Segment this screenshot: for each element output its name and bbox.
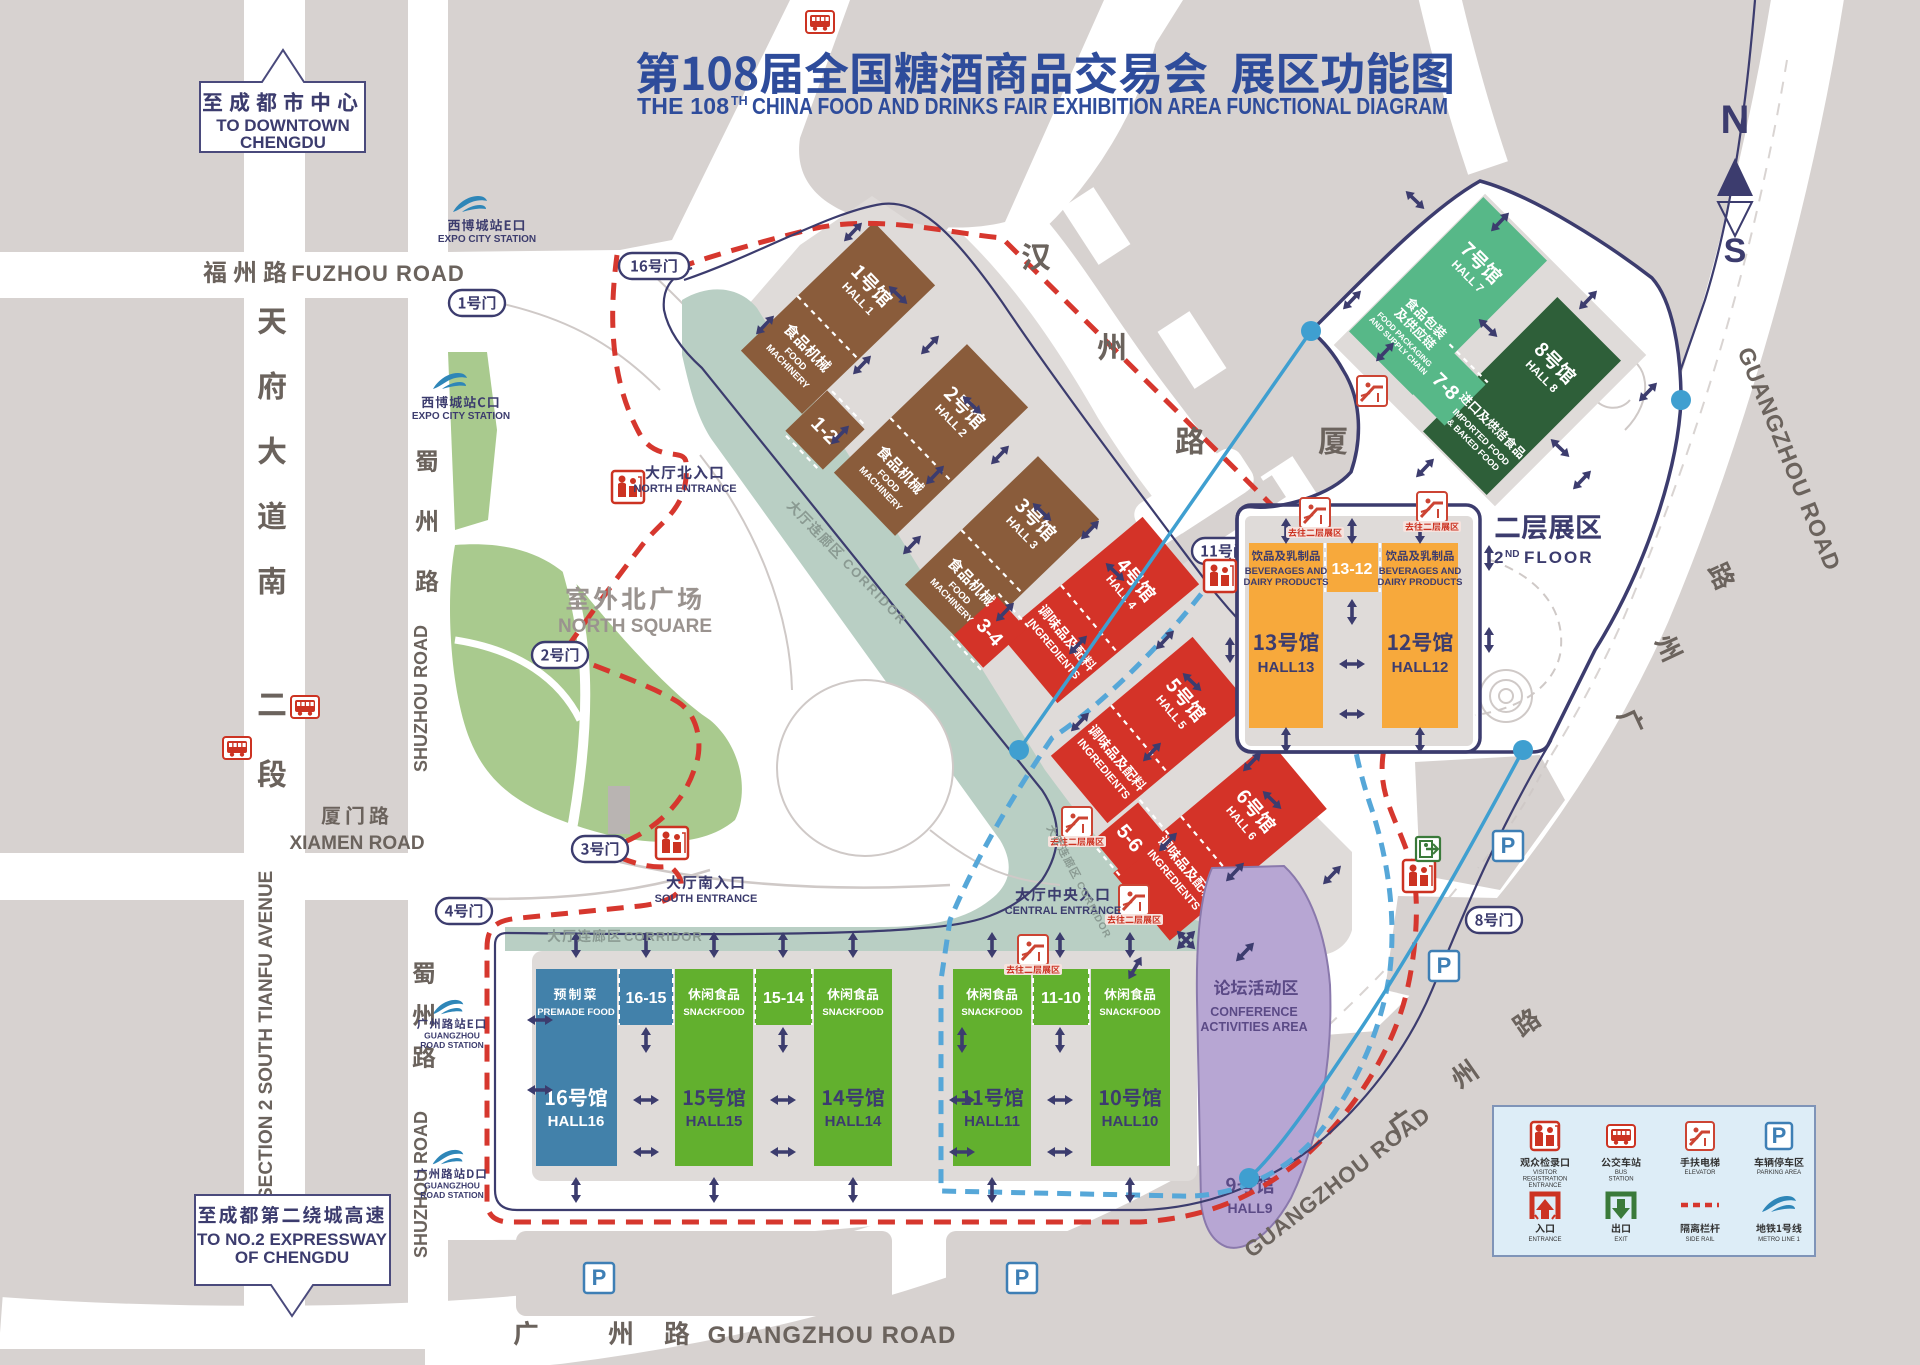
svg-text:P: P xyxy=(1772,1123,1787,1148)
svg-text:DAIRY PRODUCTS: DAIRY PRODUCTS xyxy=(1244,577,1329,588)
svg-text:15-14: 15-14 xyxy=(763,990,804,1007)
svg-text:ROAD STATION: ROAD STATION xyxy=(420,1190,483,1200)
svg-text:P: P xyxy=(592,1265,607,1290)
svg-text:BEVERAGES AND: BEVERAGES AND xyxy=(1379,566,1462,577)
svg-text:GUANGZHOU ROAD: GUANGZHOU ROAD xyxy=(708,1322,957,1349)
svg-text:HALL11: HALL11 xyxy=(964,1113,1020,1130)
svg-text:ROAD STATION: ROAD STATION xyxy=(420,1040,483,1050)
svg-text:THE 108: THE 108 xyxy=(637,93,729,119)
svg-text:BUS: BUS xyxy=(1615,1170,1627,1176)
svg-text:FLOOR: FLOOR xyxy=(1524,548,1594,567)
svg-text:EXPO CITY STATION: EXPO CITY STATION xyxy=(438,234,536,245)
svg-text:TO NO.2 EXPRESSWAY: TO NO.2 EXPRESSWAY xyxy=(197,1230,388,1249)
svg-text:PREMADE FOOD: PREMADE FOOD xyxy=(537,1007,615,1018)
svg-text:HALL14: HALL14 xyxy=(825,1113,882,1130)
svg-text:SHUZHOU ROAD: SHUZHOU ROAD xyxy=(411,625,431,772)
svg-text:SIDE RAIL: SIDE RAIL xyxy=(1685,1237,1715,1243)
svg-text:XIAMEN ROAD: XIAMEN ROAD xyxy=(289,833,424,854)
svg-text:VISITOR: VISITOR xyxy=(1533,1170,1558,1176)
svg-text:EXIT: EXIT xyxy=(1614,1237,1628,1243)
svg-text:GUANGZHOU: GUANGZHOU xyxy=(424,1181,480,1191)
svg-text:11-10: 11-10 xyxy=(1041,990,1081,1007)
svg-text:REGISTRATION: REGISTRATION xyxy=(1523,1177,1568,1183)
svg-text:ACTIVITIES AREA: ACTIVITIES AREA xyxy=(1200,1020,1307,1034)
svg-text:TH: TH xyxy=(731,94,748,108)
svg-text:FUZHOU ROAD: FUZHOU ROAD xyxy=(291,261,465,286)
svg-text:HALL12: HALL12 xyxy=(1392,659,1449,676)
svg-text:SECTION 2 SOUTH TIANFU AVENUE: SECTION 2 SOUTH TIANFU AVENUE xyxy=(256,871,277,1200)
svg-text:ENTRANCE: ENTRANCE xyxy=(1528,1183,1561,1189)
svg-text:ENTRANCE: ENTRANCE xyxy=(1528,1237,1561,1243)
svg-text:P: P xyxy=(1501,833,1516,858)
svg-text:HALL15: HALL15 xyxy=(686,1113,743,1130)
svg-text:HALL10: HALL10 xyxy=(1102,1113,1159,1130)
svg-text:P: P xyxy=(1437,953,1452,978)
svg-text:S: S xyxy=(1724,232,1747,270)
svg-text:CONFERENCE: CONFERENCE xyxy=(1210,1005,1298,1019)
svg-text:PARKING AREA: PARKING AREA xyxy=(1757,1170,1801,1176)
svg-text:CORRIDOR: CORRIDOR xyxy=(624,929,703,944)
svg-text:GUANGZHOU: GUANGZHOU xyxy=(424,1031,480,1041)
svg-text:2: 2 xyxy=(1494,548,1503,567)
svg-text:DAIRY PRODUCTS: DAIRY PRODUCTS xyxy=(1378,577,1463,588)
svg-text:NORTH ENTRANCE: NORTH ENTRANCE xyxy=(633,483,736,495)
svg-text:ELEVATOR: ELEVATOR xyxy=(1684,1170,1716,1176)
svg-text:BEVERAGES AND: BEVERAGES AND xyxy=(1245,566,1328,577)
svg-text:CHENGDU: CHENGDU xyxy=(240,133,326,152)
svg-text:OF CHENGDU: OF CHENGDU xyxy=(235,1248,349,1267)
svg-text:SNACKFOOD: SNACKFOOD xyxy=(822,1007,883,1018)
svg-text:CHINA FOOD AND DRINKS FAIR EX: CHINA FOOD AND DRINKS FAIR EXHIBITION AR… xyxy=(752,93,1448,119)
svg-text:EXPO CITY STATION: EXPO CITY STATION xyxy=(412,411,510,422)
svg-text:SNACKFOOD: SNACKFOOD xyxy=(961,1007,1022,1018)
svg-text:STATION: STATION xyxy=(1608,1177,1633,1183)
svg-text:ND: ND xyxy=(1505,549,1519,560)
svg-text:P: P xyxy=(1015,1265,1030,1290)
svg-text:SOUTH ENTRANCE: SOUTH ENTRANCE xyxy=(655,893,758,905)
svg-text:CENTRAL ENTRANCE: CENTRAL ENTRANCE xyxy=(1005,905,1122,917)
svg-text:16-15: 16-15 xyxy=(626,990,667,1007)
svg-text:SNACKFOOD: SNACKFOOD xyxy=(1099,1007,1160,1018)
svg-text:N: N xyxy=(1721,98,1750,142)
svg-text:HALL13: HALL13 xyxy=(1258,659,1315,676)
svg-text:METRO LINE 1: METRO LINE 1 xyxy=(1758,1237,1800,1243)
svg-text:HALL16: HALL16 xyxy=(548,1113,605,1130)
svg-text:SNACKFOOD: SNACKFOOD xyxy=(683,1007,744,1018)
svg-text:NORTH SQUARE: NORTH SQUARE xyxy=(558,616,712,637)
svg-text:HALL9: HALL9 xyxy=(1227,1200,1272,1216)
svg-text:13-12: 13-12 xyxy=(1332,561,1373,578)
